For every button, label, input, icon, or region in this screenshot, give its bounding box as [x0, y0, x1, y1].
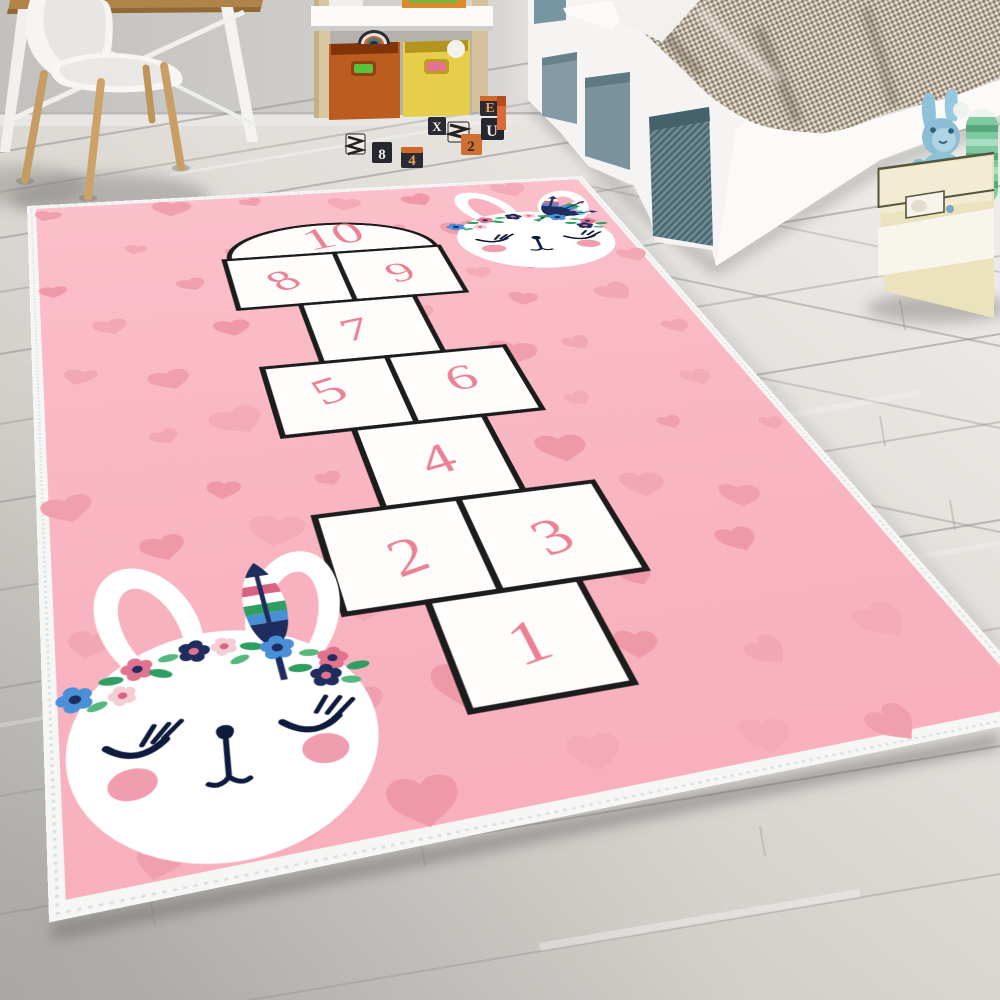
svg-text:8: 8 [378, 147, 386, 163]
svg-text:X: X [432, 119, 442, 134]
svg-text:2: 2 [467, 139, 475, 155]
svg-text:U: U [486, 123, 498, 140]
svg-text:E: E [485, 101, 494, 116]
svg-text:4: 4 [408, 153, 416, 169]
